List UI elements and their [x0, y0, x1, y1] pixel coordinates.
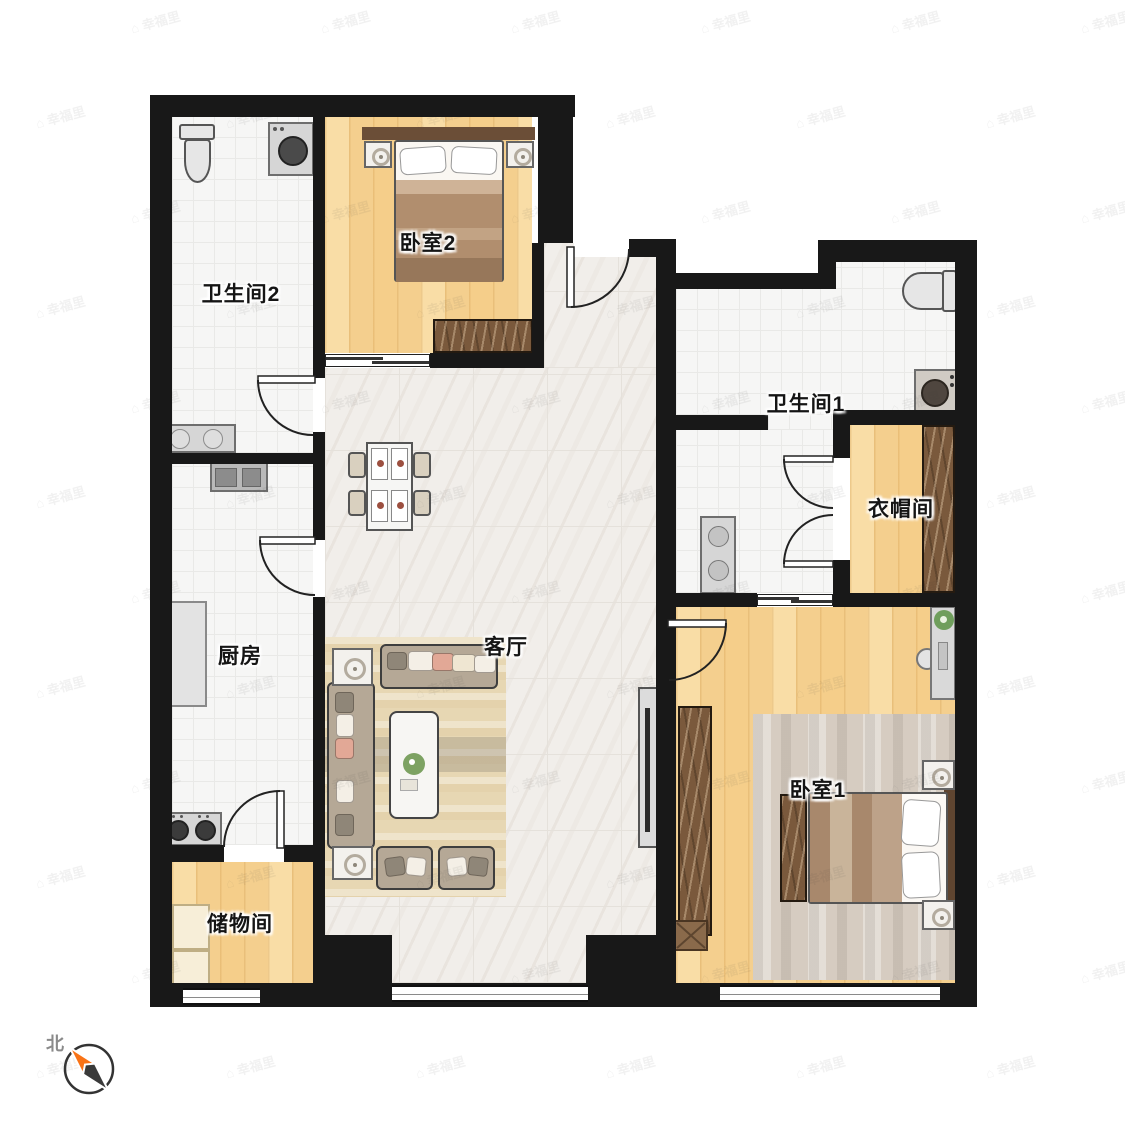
entry-hall-floor	[544, 243, 656, 368]
floor-plan: ⌂ 幸福里⌂ 幸福里⌂ 幸福里⌂ 幸福里⌂ 幸福里⌂ 幸福里⌂ 幸福里⌂ 幸福里…	[0, 0, 1125, 1125]
basin-icon	[203, 429, 223, 449]
watermark-text: ⌂ 幸福里	[1078, 956, 1125, 987]
corridor-washbasin	[700, 516, 736, 594]
watermark-text: ⌂ 幸福里	[33, 861, 87, 892]
room-label-bathroom2: 卫生间2	[202, 278, 281, 308]
wall-bedroom2-bottom	[430, 353, 532, 368]
watermark-text: ⌂ 幸福里	[983, 481, 1037, 512]
toilet-bowl-bathroom1	[902, 272, 944, 310]
washer-drum-icon	[921, 379, 949, 407]
watermark-text: ⌂ 幸福里	[793, 101, 847, 132]
bed2	[394, 140, 504, 282]
kitchen-sink	[210, 462, 268, 492]
dining-chair	[348, 452, 366, 478]
wall-entry-column	[538, 117, 573, 243]
watermark-text: ⌂ 幸福里	[888, 196, 942, 227]
wall-closet-left-upper	[833, 425, 850, 458]
sliding-door-bedroom2	[325, 354, 430, 367]
toilet-bowl-bathroom2	[184, 139, 211, 183]
watermark-text: ⌂ 幸福里	[603, 101, 657, 132]
armchair	[438, 846, 495, 890]
bed1-blanket	[810, 794, 872, 902]
watermark-text: ⌂ 幸福里	[1078, 6, 1125, 37]
pillow	[900, 799, 941, 848]
watermark-text: ⌂ 幸福里	[983, 861, 1037, 892]
watermark-text: ⌂ 幸福里	[983, 291, 1037, 322]
bed2-headboard	[362, 127, 535, 140]
room-label-closet: 衣帽间	[868, 493, 934, 523]
basin-icon	[708, 560, 729, 581]
washer-dot	[273, 127, 277, 131]
watermark-text: ⌂ 幸福里	[603, 1051, 657, 1082]
corner-table	[674, 920, 708, 951]
watermark-text: ⌂ 幸福里	[33, 481, 87, 512]
wall-closet-bottom	[833, 593, 955, 607]
watermark-text: ⌂ 幸福里	[793, 1051, 847, 1082]
place-setting	[391, 490, 408, 522]
stove-knob	[198, 815, 201, 818]
bedroom2-cabinet	[433, 319, 533, 353]
wall-bedroom1-top	[656, 593, 757, 607]
wall-notch	[660, 273, 836, 289]
watermark-text: ⌂ 幸福里	[698, 196, 752, 227]
toilet-tank-bathroom2	[179, 124, 215, 140]
wall-kitchen-bottom-left	[172, 845, 224, 862]
dining-chair	[413, 490, 431, 516]
watermark-text: ⌂ 幸福里	[1078, 196, 1125, 227]
nightstand	[922, 760, 955, 790]
tv-icon	[645, 708, 650, 832]
bed1-bench	[780, 794, 807, 902]
stove-knob	[180, 815, 183, 818]
sofa-three-seat	[380, 644, 498, 689]
side-table	[332, 648, 373, 686]
wall-left	[150, 95, 172, 1007]
stove-knob	[206, 815, 209, 818]
dining-table	[366, 442, 413, 531]
bedroom1-wardrobe	[678, 706, 712, 936]
nightstand	[364, 141, 392, 168]
washing-machine-bathroom1	[914, 369, 958, 415]
flower-icon	[409, 759, 415, 765]
nightstand	[922, 900, 955, 930]
watermark-text: ⌂ 幸福里	[983, 1051, 1037, 1082]
watermark-text: ⌂ 幸福里	[1078, 766, 1125, 797]
watermark-text: ⌂ 幸福里	[888, 6, 942, 37]
dining-chair	[413, 452, 431, 478]
washer-drum-icon	[278, 136, 308, 166]
sink-basin	[242, 468, 261, 487]
tray	[400, 779, 418, 791]
wall-top-right	[818, 240, 977, 262]
watermark-text: ⌂ 幸福里	[128, 6, 182, 37]
wall-right	[955, 240, 977, 1007]
washer-dot	[950, 383, 954, 387]
wall-bathroom1-bottom	[660, 415, 768, 430]
wall-bathroom2-bottom	[165, 453, 325, 464]
double-sink-bathroom2	[163, 424, 236, 453]
wall-bay-left	[320, 935, 392, 985]
pillow	[901, 851, 941, 899]
room-label-bathroom1: 卫生间1	[767, 388, 846, 418]
room-label-living: 客厅	[484, 631, 528, 661]
coffee-table	[389, 711, 439, 819]
place-setting	[391, 448, 408, 480]
washer-dot	[950, 375, 954, 379]
wall-hall-divider	[656, 243, 676, 983]
room-label-bedroom1: 卧室1	[790, 774, 847, 804]
side-table	[332, 846, 373, 880]
watermark-text: ⌂ 幸福里	[223, 1051, 277, 1082]
watermark-text: ⌂ 幸福里	[413, 1051, 467, 1082]
place-setting	[371, 448, 388, 480]
window-living	[392, 985, 588, 1002]
north-label: 北	[46, 1030, 64, 1056]
compass-icon	[56, 1036, 126, 1102]
room-label-bedroom2: 卧室2	[400, 227, 457, 257]
watermark-text: ⌂ 幸福里	[698, 6, 752, 37]
wall-kitchen-right-lower	[313, 597, 325, 983]
basin-icon	[708, 526, 729, 547]
wall-bathroom2-right	[313, 95, 325, 378]
room-label-kitchen: 厨房	[218, 640, 262, 670]
flower-icon	[940, 616, 947, 623]
pillow	[450, 146, 497, 175]
sliding-door-bedroom1	[757, 594, 833, 606]
armchair	[376, 846, 433, 890]
vanity-desk	[930, 606, 956, 700]
bed1	[808, 792, 948, 904]
burner-icon	[195, 820, 216, 841]
watermark-text: ⌂ 幸福里	[1078, 386, 1125, 417]
washer-dot	[280, 127, 284, 131]
vanity-mirror	[938, 642, 948, 670]
place-setting	[371, 490, 388, 522]
bed1-sheet	[872, 794, 902, 902]
sink-basin	[215, 468, 237, 487]
pillow	[399, 145, 447, 175]
room-label-storage: 储物间	[207, 908, 273, 938]
washing-machine-bathroom2	[268, 122, 314, 176]
storage-shelf	[172, 904, 210, 950]
watermark-text: ⌂ 幸福里	[1078, 576, 1125, 607]
wall-closet-left-lower	[833, 560, 850, 595]
watermark-text: ⌂ 幸福里	[318, 6, 372, 37]
wall-bay-right	[586, 935, 658, 985]
watermark-text: ⌂ 幸福里	[33, 291, 87, 322]
watermark-text: ⌂ 幸福里	[983, 671, 1037, 702]
bed2-foot	[396, 258, 502, 282]
wall-bedroom2-right	[532, 243, 544, 368]
wall-closet-top	[833, 410, 955, 425]
watermark-text: ⌂ 幸福里	[33, 671, 87, 702]
wall-kitchen-right-upper	[313, 432, 325, 540]
sofa-chaise	[327, 682, 375, 849]
stove-knob	[172, 815, 175, 818]
entry-opening	[574, 239, 629, 257]
nightstand	[506, 141, 534, 168]
watermark-text: ⌂ 幸福里	[983, 101, 1037, 132]
window-bedroom1	[720, 985, 940, 1002]
watermark-text: ⌂ 幸福里	[33, 101, 87, 132]
dining-chair	[348, 490, 366, 516]
watermark-text: ⌂ 幸福里	[508, 6, 562, 37]
basin-icon	[170, 429, 190, 449]
wall-top	[150, 95, 575, 117]
wall-kitchen-bottom-right	[284, 845, 325, 862]
window-storage	[183, 988, 260, 1005]
